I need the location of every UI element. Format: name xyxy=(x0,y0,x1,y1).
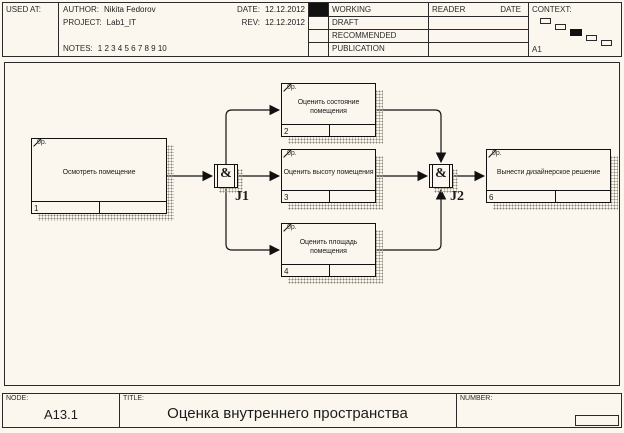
kit-footer: NODE: A13.1 NUMBER: TITLE: Оценка внутре… xyxy=(2,393,622,428)
activity-box-2: 0р. Оценить состояние помещения 2 xyxy=(281,83,376,137)
box-number-strip xyxy=(487,190,610,202)
number-field-box xyxy=(575,415,619,426)
notes-values: 1 2 3 4 5 6 7 8 9 10 xyxy=(98,44,167,53)
used-at-label: USED AT: xyxy=(6,5,41,14)
junction-j2-label: J2 xyxy=(450,189,464,205)
strip-divider xyxy=(329,265,330,276)
divider xyxy=(58,3,59,56)
row-line xyxy=(308,16,528,17)
diagram-canvas: 0р. Осмотреть помещение 1 0р. Оценить со… xyxy=(4,62,620,386)
status-publication: PUBLICATION xyxy=(332,44,385,53)
activity-label: Оценить высоту помещения xyxy=(283,156,374,190)
box-number-strip xyxy=(282,124,375,136)
junction-j2: & xyxy=(429,164,453,188)
box-number: 2 xyxy=(284,127,288,136)
context-box-icon xyxy=(540,18,551,24)
row-line xyxy=(308,42,528,43)
box-number: 3 xyxy=(284,193,288,202)
context-current-box-icon xyxy=(570,29,582,36)
notes-label: NOTES: xyxy=(63,44,93,53)
rev-row: REV:12.12.2012 xyxy=(242,18,305,27)
date-value: 12.12.2012 xyxy=(265,5,305,14)
box-number: 1 xyxy=(34,204,38,213)
box-number: 4 xyxy=(284,267,288,276)
junction-j1: & xyxy=(214,164,238,188)
reader-date-label: DATE xyxy=(500,5,521,14)
diagram-title: Оценка внутреннего пространства xyxy=(119,405,456,422)
context-box-icon xyxy=(586,35,597,41)
node-label: NODE: xyxy=(6,395,28,402)
rev-value: 12.12.2012 xyxy=(265,18,305,27)
box-number: 6 xyxy=(489,193,493,202)
idef3-diagram-page: USED AT: AUTHOR:Nikita Fedorov PROJECT:L… xyxy=(0,0,624,433)
activity-label: Вынести дизайнерское решение xyxy=(488,156,609,190)
status-draft: DRAFT xyxy=(332,18,359,27)
arrow-box2-to-j2 xyxy=(376,110,441,162)
node-value: A13.1 xyxy=(3,407,119,422)
strip-divider xyxy=(99,202,100,213)
arrow-box4-to-j2 xyxy=(376,190,441,250)
author-row: AUTHOR:Nikita Fedorov xyxy=(63,5,156,14)
date-row: DATE:12.12.2012 xyxy=(237,5,305,14)
activity-box-3: 0р. Оценить высоту помещения 3 xyxy=(281,149,376,203)
notes-row: NOTES:1 2 3 4 5 6 7 8 9 10 xyxy=(63,44,167,53)
box-number-strip xyxy=(282,190,375,202)
number-label: NUMBER: xyxy=(460,395,492,402)
arrow-j1-to-box4 xyxy=(226,188,279,250)
date-label: DATE: xyxy=(237,5,260,14)
and-junction-symbol: & xyxy=(215,166,237,182)
author-value: Nikita Fedorov xyxy=(104,5,156,14)
activity-box-1: 0р. Осмотреть помещение 1 xyxy=(31,138,167,214)
strip-divider xyxy=(555,191,556,202)
activity-label: Оценить площадь помещения xyxy=(283,230,374,264)
project-value: Lab1_IT xyxy=(107,18,136,27)
kit-header: USED AT: AUTHOR:Nikita Fedorov PROJECT:L… xyxy=(2,2,622,57)
and-junction-symbol: & xyxy=(430,166,452,182)
context-box-icon xyxy=(555,24,566,30)
status-recommended: RECOMMENDED xyxy=(332,31,396,40)
arrow-j1-to-box2 xyxy=(226,110,279,164)
title-label: TITLE: xyxy=(123,395,144,402)
author-label: AUTHOR: xyxy=(63,5,99,14)
context-label: CONTEXT: xyxy=(532,5,572,14)
row-line xyxy=(308,29,528,30)
reader-label: READER xyxy=(432,5,465,14)
divider xyxy=(456,394,457,427)
box-number-strip xyxy=(282,264,375,276)
activity-box-6: 0р. Вынести дизайнерское решение 6 xyxy=(486,149,611,203)
junction-j1-label: J1 xyxy=(235,189,249,205)
project-row: PROJECT:Lab1_IT xyxy=(63,18,136,27)
activity-label: Оценить состояние помещения xyxy=(283,90,374,124)
activity-box-4: 0р. Оценить площадь помещения 4 xyxy=(281,223,376,277)
context-box-icon xyxy=(601,40,612,46)
context-node-value: A1 xyxy=(532,45,542,54)
divider xyxy=(528,3,529,56)
box-number-strip xyxy=(32,201,166,213)
strip-divider xyxy=(329,125,330,136)
rev-label: REV: xyxy=(242,18,260,27)
activity-label: Осмотреть помещение xyxy=(33,145,165,201)
working-status-marker xyxy=(309,3,328,16)
project-label: PROJECT: xyxy=(63,18,102,27)
strip-divider xyxy=(329,191,330,202)
status-working: WORKING xyxy=(332,5,371,14)
